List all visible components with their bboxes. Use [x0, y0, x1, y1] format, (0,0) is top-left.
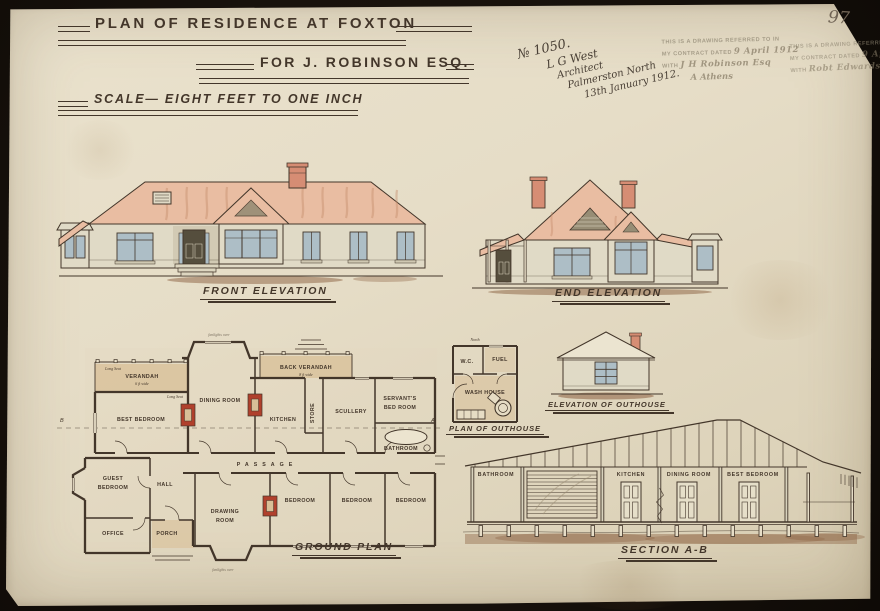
title-line-2: FOR J. ROBINSON ESQ. [260, 54, 470, 70]
front-elevation-drawing [55, 160, 447, 288]
title-rule-leading [58, 26, 90, 32]
section-label-best-bedroom: BEST BEDROOM [727, 472, 779, 478]
section-marker-b: B [60, 418, 64, 424]
contract-stamp-2: THIS IS A DRAWING REFERRED TO IN MY CONT… [789, 40, 880, 78]
north-note: North [469, 338, 479, 342]
scale-line: SCALE— EIGHT FEET TO ONE INCH [94, 92, 363, 106]
stamp-signature: J H Robinson Esq [680, 58, 771, 70]
stamp-printed-line: MY CONTRACT DATED 9 April 1912 [662, 45, 784, 58]
room-label-servants-2: BED ROOM [384, 405, 417, 411]
room-label-office: OFFICE [102, 531, 124, 537]
note-fanlights: fanlights over [208, 333, 230, 337]
contract-stamp-1: THIS IS A DRAWING REFERRED TO IN MY CONT… [661, 36, 784, 83]
outhouse-ground [551, 393, 663, 400]
room-sublabel-back-verandah-width: 8 ft wide [299, 373, 313, 377]
room-label-best-bedroom: BEST BEDROOM [117, 417, 165, 423]
stamp-signature: Robt Edwards [809, 61, 880, 74]
section-door [621, 482, 641, 522]
front-ground [59, 276, 443, 284]
subtitle-rule-trailing [446, 64, 474, 70]
scale-underline [58, 110, 358, 116]
room-label-guest-1: GUEST [103, 476, 124, 482]
section-label-dining-room: DINING ROOM [667, 472, 711, 478]
stamp-date-filled: 9 April 1912 [862, 47, 880, 60]
room-label-passage: PASSAGE [237, 462, 298, 468]
note-fanlights: fanlights over [212, 568, 234, 572]
room-label-back-verandah: BACK VERANDAH [280, 365, 332, 371]
outhouse-elevation-drawing [543, 326, 668, 404]
room-label-bedroom: BEDROOM [396, 498, 427, 504]
section-veranda [803, 473, 857, 522]
ground-plan-drawing: B A [55, 328, 445, 576]
room-label-wc: W.C. [460, 359, 473, 365]
stamp-printed-line: WITH Robt Edwards [790, 61, 880, 75]
section-drawing: BATHROOM KITCHEN DINING ROOM BEST BEDROO… [455, 410, 870, 560]
section-ground [463, 531, 865, 544]
room-label-servants-1: SERVANT'S [383, 396, 416, 402]
room-label-verandah: VERANDAH [125, 374, 158, 380]
room-label-drawing-1: DRAWING [211, 509, 239, 515]
stamp-printed-line: WITH J H Robinson Esq [662, 57, 784, 70]
sheet-number: 97 [827, 7, 850, 28]
room-label-store: STORE [310, 403, 316, 423]
room-label-drawing-2: ROOM [216, 518, 234, 524]
note-long-seat: Long Seat [166, 395, 184, 399]
front-chimney [287, 163, 308, 188]
ground-plan-label: GROUND PLAN [292, 541, 396, 556]
room-label-hall: HALL [157, 482, 173, 488]
end-walls [486, 240, 718, 284]
stamp-printed-line: MY CONTRACT DATED 9 April 1912 [790, 48, 880, 62]
note-long-seat: Long Seat [104, 367, 122, 371]
subtitle-underline [199, 78, 469, 84]
section-label-bathroom: BATHROOM [478, 472, 514, 478]
room-sublabel-verandah-width: 6 ft wide [135, 382, 149, 386]
title-underline [58, 40, 406, 46]
end-corner-bay [688, 234, 722, 282]
end-windows [552, 248, 592, 279]
stamp-printed-line: THIS IS A DRAWING REFERRED TO IN [661, 36, 783, 45]
section-label: SECTION A-B [618, 544, 712, 559]
title-rule-trailing [396, 26, 472, 32]
scanned-drawing-sheet: PLAN OF RESIDENCE AT FOXTON FOR J. ROBIN… [0, 0, 880, 611]
section-louvre-panel [527, 471, 597, 518]
room-label-dining-room: DINING ROOM [200, 398, 241, 404]
architect-annotation: № 1050. L G West Architect Palmerston No… [516, 13, 681, 114]
stamp-witness-signature: A Athens [690, 70, 784, 82]
scale-rule-leading [58, 101, 88, 107]
section-roof [465, 420, 861, 473]
section-doors [621, 482, 759, 523]
section-door [677, 482, 697, 522]
room-label-kitchen: KITCHEN [270, 417, 296, 423]
front-elevation-label: FRONT ELEVATION [200, 285, 331, 300]
room-label-scullery: SCULLERY [335, 409, 367, 415]
outhouse-window [595, 362, 617, 384]
section-door [739, 482, 759, 522]
title-line-1: PLAN OF RESIDENCE AT FOXTON [95, 15, 417, 32]
end-elevation-label: END ELEVATION [552, 287, 665, 302]
room-label-fuel: FUEL [492, 357, 508, 363]
section-label-kitchen: KITCHEN [617, 472, 645, 478]
room-label-wash-house: WASH HOUSE [465, 390, 505, 396]
room-label-porch: PORCH [156, 531, 177, 537]
room-label-guest-2: BEDROOM [98, 485, 129, 491]
room-label-bedroom: BEDROOM [342, 498, 373, 504]
room-label-bedroom: BEDROOM [285, 498, 316, 504]
room-label-bathroom: BATHROOM [384, 446, 418, 452]
subtitle-rule-leading [196, 64, 254, 70]
